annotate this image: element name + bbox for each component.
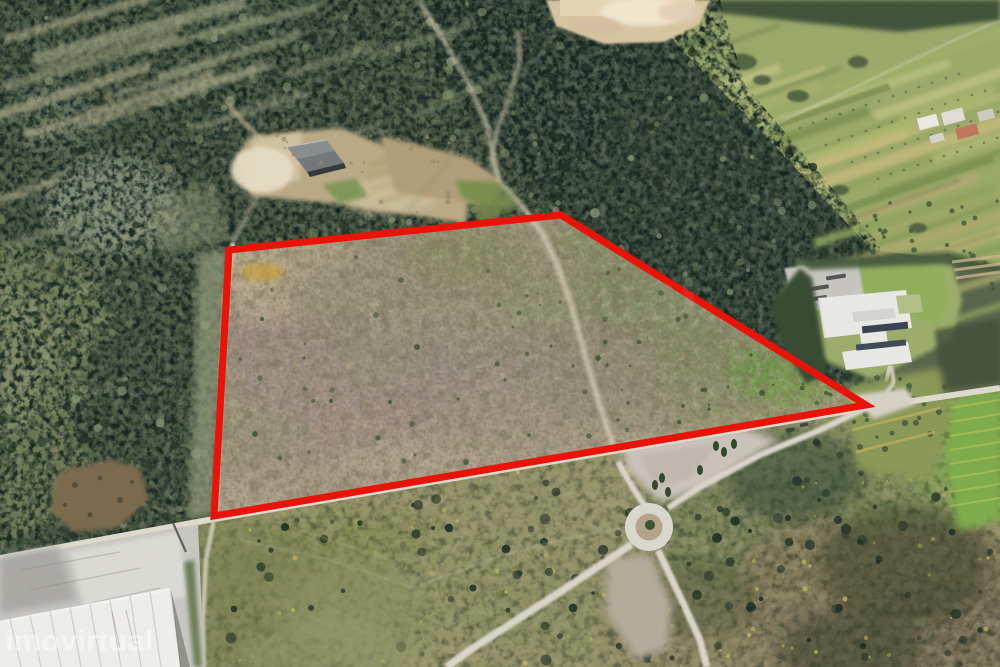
svg-text:imovirtual: imovirtual (5, 623, 153, 658)
